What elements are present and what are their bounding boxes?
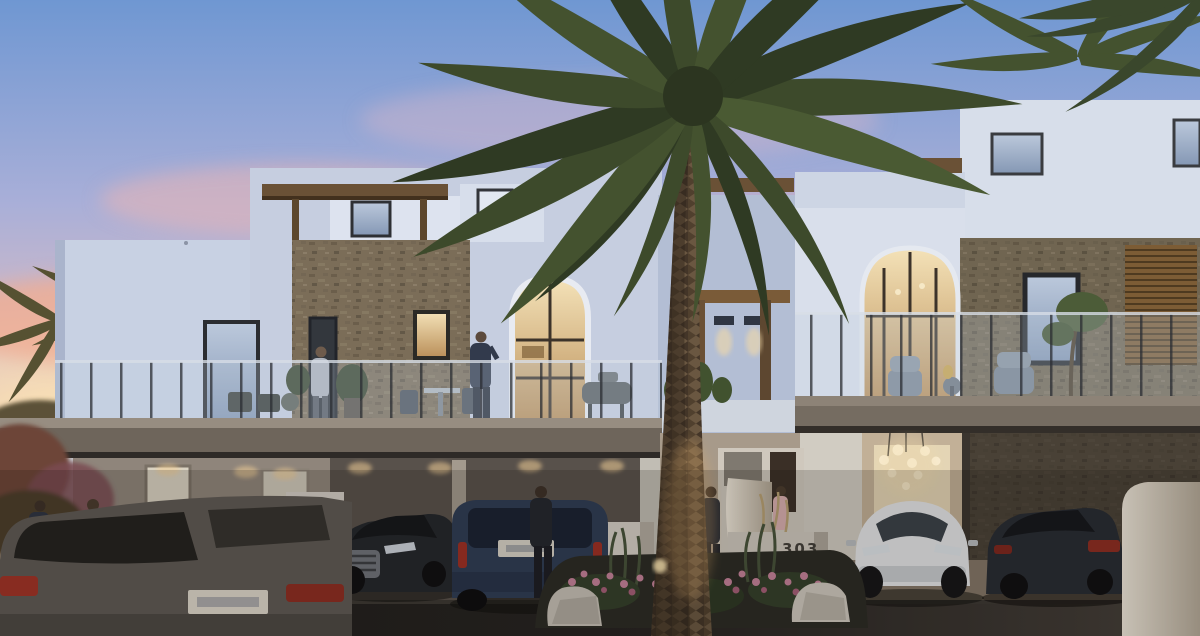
glass-balustrade-left	[55, 360, 662, 420]
terrace-slab-left	[0, 418, 662, 460]
terrace-slab-right	[795, 396, 1200, 433]
upper-window-1	[992, 134, 1042, 174]
window-lit	[415, 312, 448, 358]
glass-balustrade-right	[795, 312, 1200, 398]
architectural-rendering: 302 303	[0, 0, 1200, 636]
upper-window-2	[1174, 120, 1200, 166]
wall-sconce-glow	[716, 328, 732, 356]
rooftop-window	[352, 202, 390, 236]
dusk-vignette	[0, 470, 1200, 636]
